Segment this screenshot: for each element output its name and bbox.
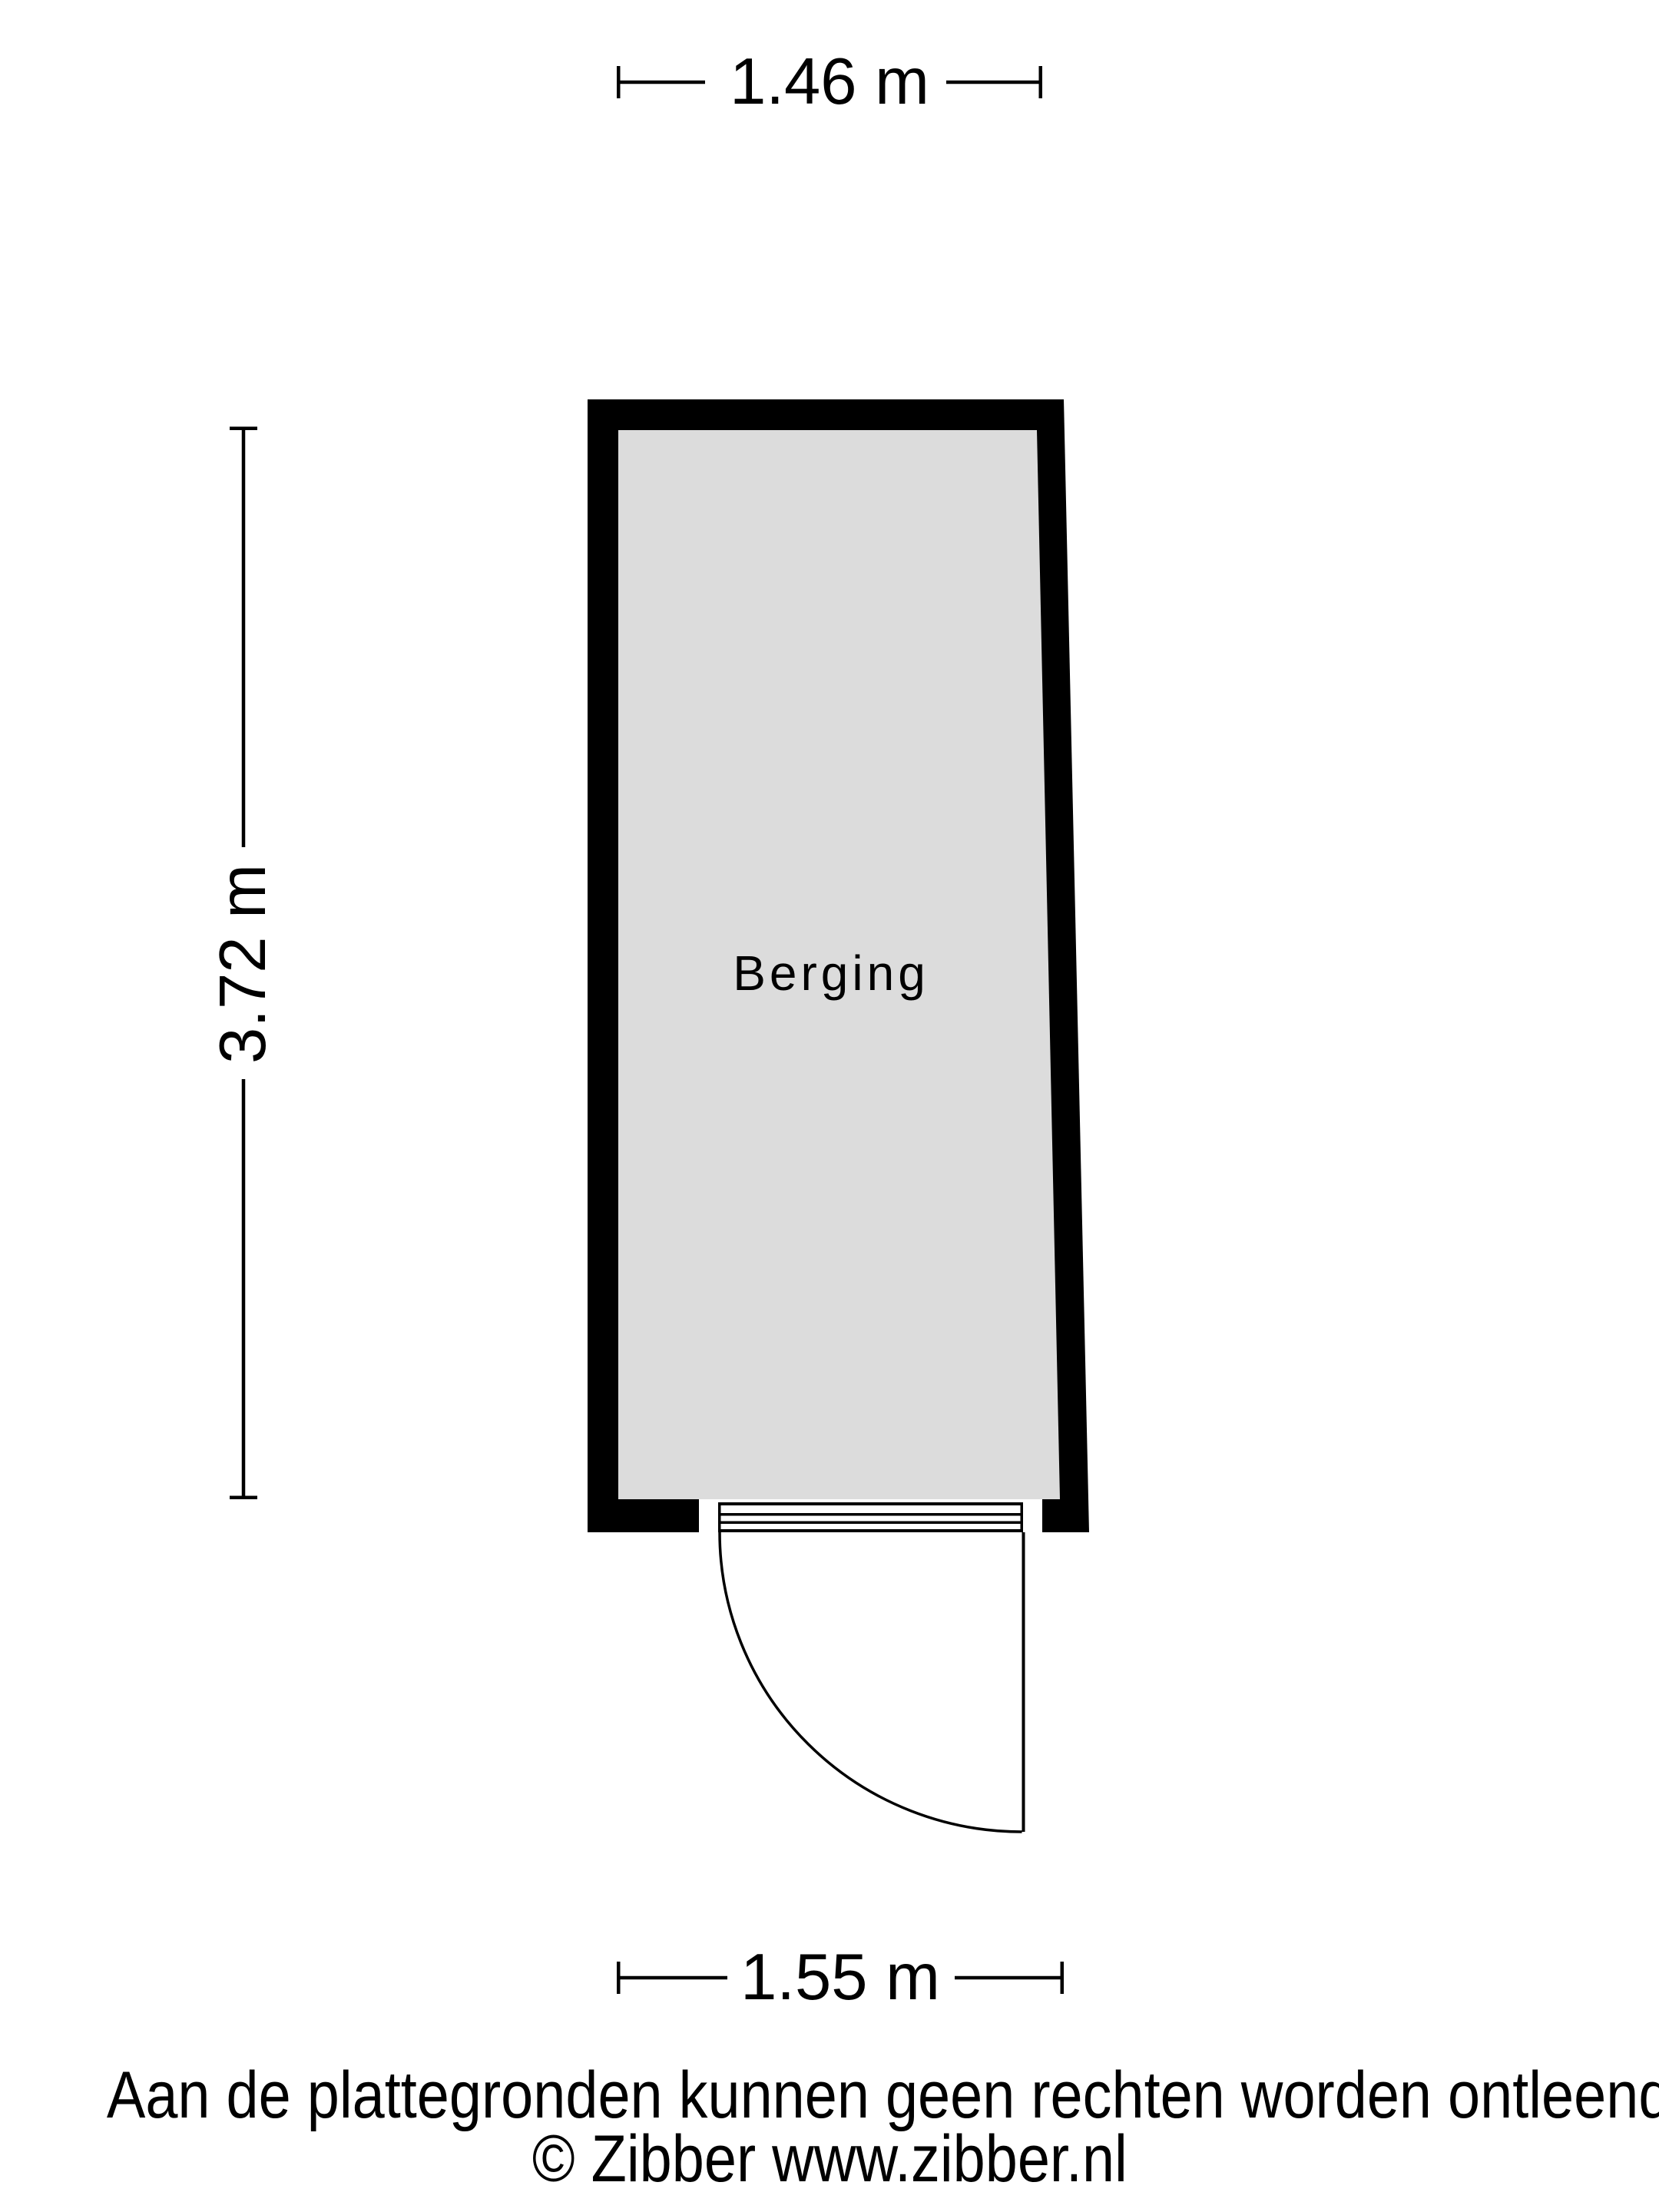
threshold-left-edge: [718, 1502, 721, 1532]
dimension-line-left-segment: [618, 1976, 727, 1980]
door-swing-arc: [720, 1532, 1022, 1832]
dimension-tick-right: [1039, 66, 1043, 98]
left-dimension: 3.72 m: [207, 427, 280, 1500]
bottom-dimension-label: 1.55 m: [740, 1941, 940, 2014]
floorplan-page: 1.46 m 3.72 m: [0, 0, 1659, 2212]
floor-plan-canvas: 1.46 m 3.72 m: [0, 0, 1659, 2212]
footer-copyright-text: © Zibber www.zibber.nl: [531, 2126, 1127, 2192]
threshold-line-3: [718, 1522, 1023, 1525]
dimension-line-right-segment: [946, 81, 1039, 84]
footer-disclaimer-text: Aan de plattegronden kunnen geen rechten…: [107, 2062, 1659, 2128]
threshold-line-2: [718, 1513, 1023, 1516]
dimension-line-right-segment: [955, 1976, 1062, 1980]
bottom-dimension: 1.55 m: [617, 1941, 1064, 2014]
left-dimension-label: 3.72 m: [207, 864, 280, 1064]
top-dimension-label: 1.46 m: [730, 45, 929, 118]
footer-disclaimer: Aan de plattegronden kunnen geen rechten…: [0, 2062, 1659, 2128]
door-leaf: [1022, 1532, 1025, 1832]
storage-room: Berging: [588, 399, 1089, 1832]
dimension-line-top-segment: [242, 429, 246, 847]
dimension-line-left-segment: [618, 81, 705, 84]
dimension-line-bottom-segment: [242, 1079, 246, 1498]
threshold-line-1: [718, 1502, 1023, 1505]
threshold-line-4: [718, 1529, 1023, 1532]
top-dimension: 1.46 m: [617, 45, 1042, 118]
threshold-right-edge: [1021, 1502, 1024, 1532]
room-label: Berging: [733, 945, 929, 1001]
footer-copyright: © Zibber www.zibber.nl: [0, 2126, 1659, 2192]
